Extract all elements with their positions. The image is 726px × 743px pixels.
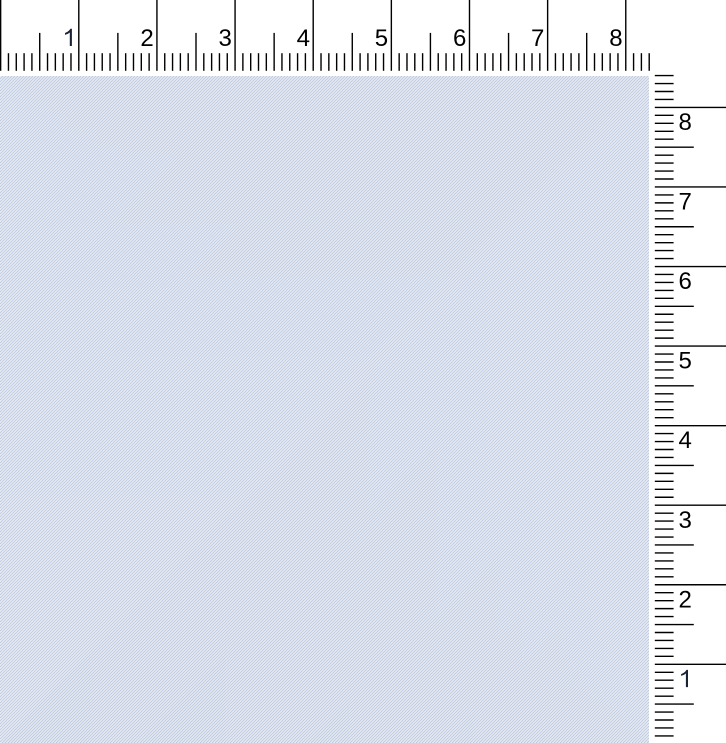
svg-text:6: 6 bbox=[679, 268, 692, 295]
svg-text:7: 7 bbox=[679, 189, 692, 216]
svg-text:2: 2 bbox=[679, 586, 692, 613]
svg-text:8: 8 bbox=[609, 25, 622, 52]
svg-text:2: 2 bbox=[140, 25, 153, 52]
svg-text:5: 5 bbox=[679, 348, 692, 375]
svg-text:3: 3 bbox=[219, 25, 232, 52]
svg-text:3: 3 bbox=[679, 507, 692, 534]
svg-text:4: 4 bbox=[679, 427, 692, 454]
svg-text:8: 8 bbox=[679, 109, 692, 136]
svg-text:7: 7 bbox=[531, 25, 544, 52]
svg-text:6: 6 bbox=[453, 25, 466, 52]
svg-text:5: 5 bbox=[375, 25, 388, 52]
svg-text:4: 4 bbox=[297, 25, 310, 52]
